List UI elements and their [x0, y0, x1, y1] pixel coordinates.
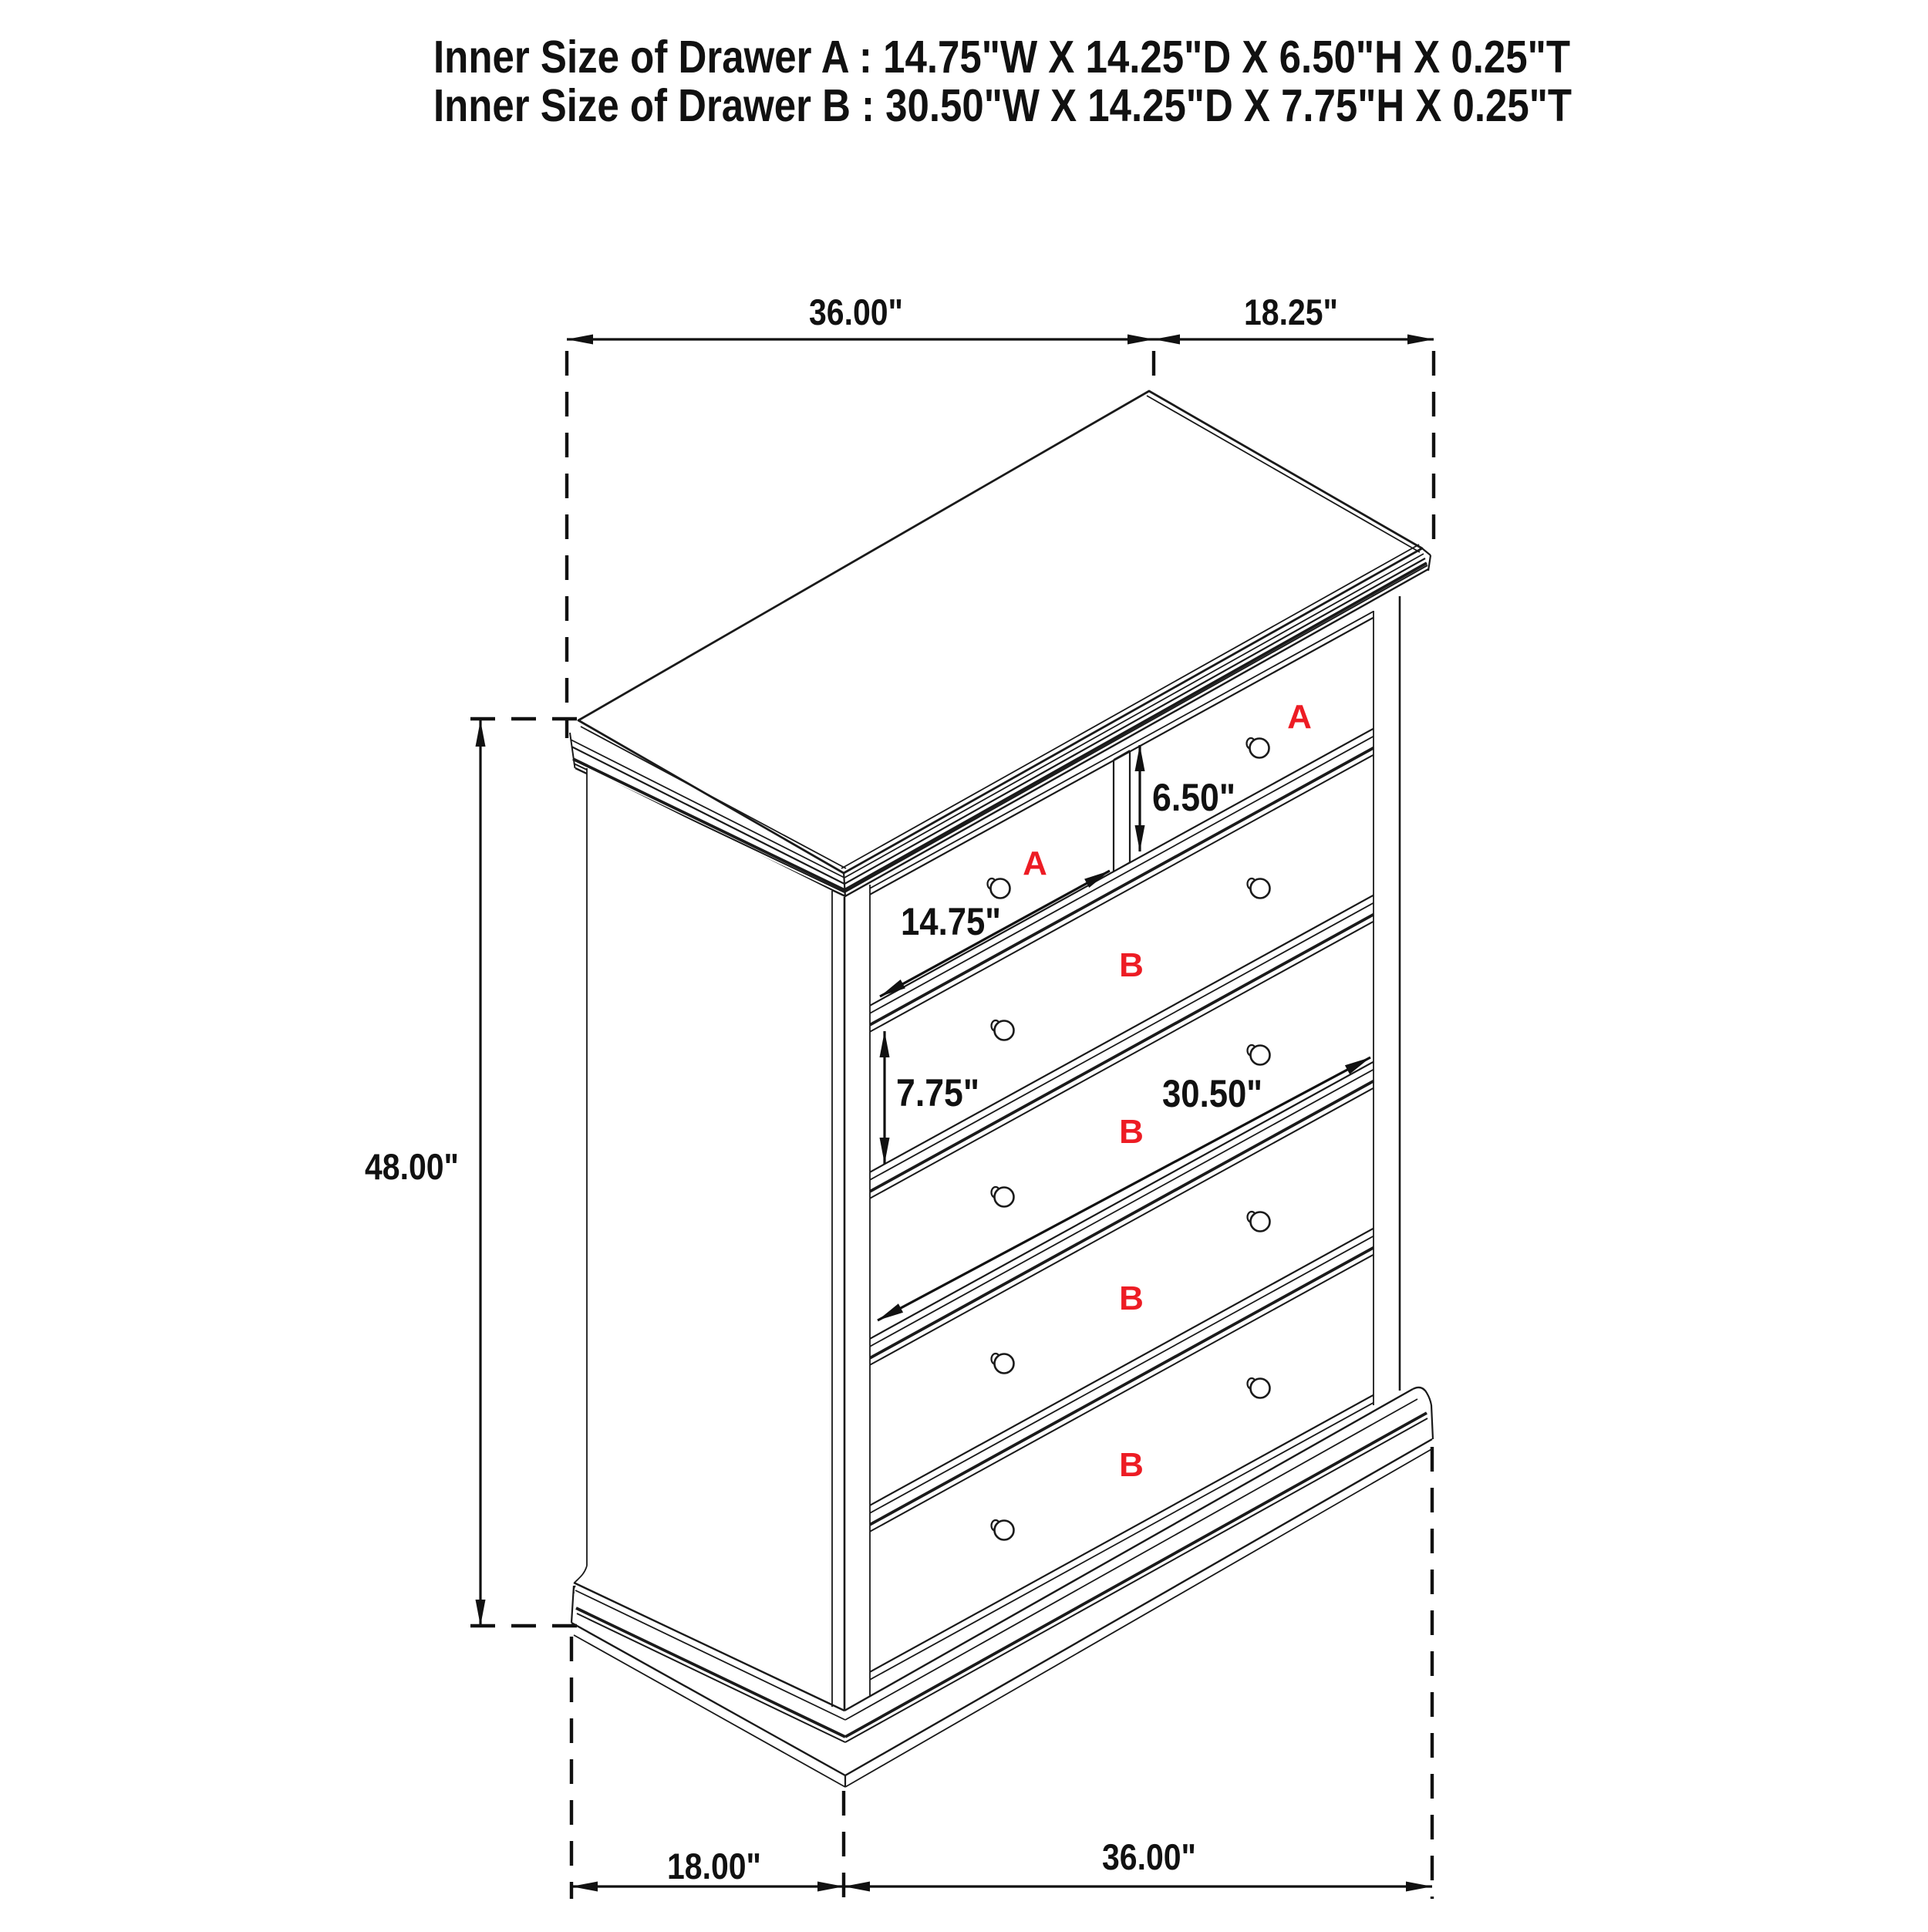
- svg-text:36.00": 36.00": [1102, 1836, 1196, 1877]
- svg-text:B: B: [1119, 1280, 1144, 1317]
- svg-text:36.00": 36.00": [809, 292, 903, 332]
- svg-text:14.75": 14.75": [901, 900, 1001, 943]
- svg-text:30.50": 30.50": [1162, 1072, 1262, 1115]
- svg-text:6.50": 6.50": [1152, 776, 1235, 819]
- svg-text:B: B: [1119, 1113, 1144, 1151]
- svg-text:7.75": 7.75": [896, 1071, 979, 1114]
- svg-text:Inner Size of Drawer A : 14.75: Inner Size of Drawer A : 14.75"W X 14.25…: [433, 32, 1570, 83]
- svg-text:48.00": 48.00": [365, 1146, 459, 1187]
- svg-text:18.00": 18.00": [667, 1846, 761, 1886]
- svg-text:B: B: [1119, 946, 1144, 984]
- svg-text:B: B: [1119, 1446, 1144, 1484]
- svg-text:Inner Size of Drawer B : 30.50: Inner Size of Drawer B : 30.50"W X 14.25…: [433, 80, 1572, 131]
- svg-text:18.25": 18.25": [1244, 292, 1338, 332]
- svg-text:A: A: [1023, 845, 1047, 882]
- svg-text:A: A: [1287, 698, 1312, 736]
